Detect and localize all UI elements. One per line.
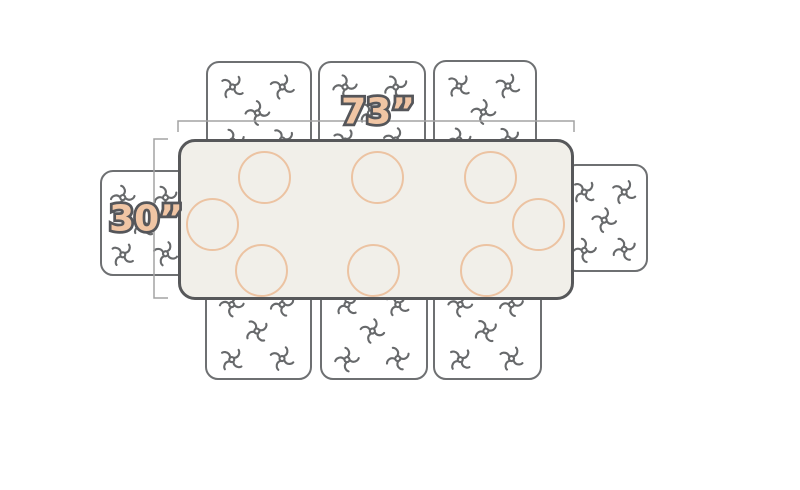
pinwheel-motif-icon: [153, 241, 178, 266]
pinwheel-motif-icon: [613, 180, 636, 203]
width-dimension-label: 73” 73”: [341, 95, 415, 131]
chair-right: [563, 164, 648, 272]
pinwheel-motif-icon: [472, 318, 499, 345]
pinwheel-motif-icon: [222, 77, 242, 97]
depth-label-text: 30”: [109, 199, 183, 240]
dining-table: [178, 139, 574, 300]
chair-pattern: [563, 164, 648, 272]
pinwheel-motif-icon: [243, 99, 271, 127]
pinwheel-motif-icon: [221, 349, 243, 371]
pinwheel-motif-icon: [384, 345, 412, 373]
pinwheel-motif-icon: [333, 345, 361, 373]
pinwheel-motif-icon: [270, 74, 295, 99]
depth-dimension-label: 30” 30”: [109, 202, 183, 238]
pinwheel-motif-icon: [270, 346, 294, 370]
pinwheel-motif-icon: [500, 347, 523, 370]
pinwheel-motif-icon: [570, 236, 599, 265]
pinwheel-motif-icon: [496, 74, 520, 98]
width-label-text: 73”: [341, 92, 415, 133]
pinwheel-motif-icon: [359, 318, 385, 344]
pinwheel-motif-icon: [449, 348, 472, 371]
pinwheel-motif-icon: [244, 318, 270, 344]
pinwheel-motif-icon: [591, 207, 618, 234]
pinwheel-motif-icon: [610, 235, 638, 263]
pinwheel-motif-icon: [113, 245, 133, 265]
pinwheel-motif-icon: [573, 181, 596, 204]
pinwheel-motif-icon: [448, 75, 470, 97]
pinwheel-motif-icon: [470, 98, 498, 126]
table-seating-diagram: 73” 73” 30” 30”: [0, 0, 800, 490]
